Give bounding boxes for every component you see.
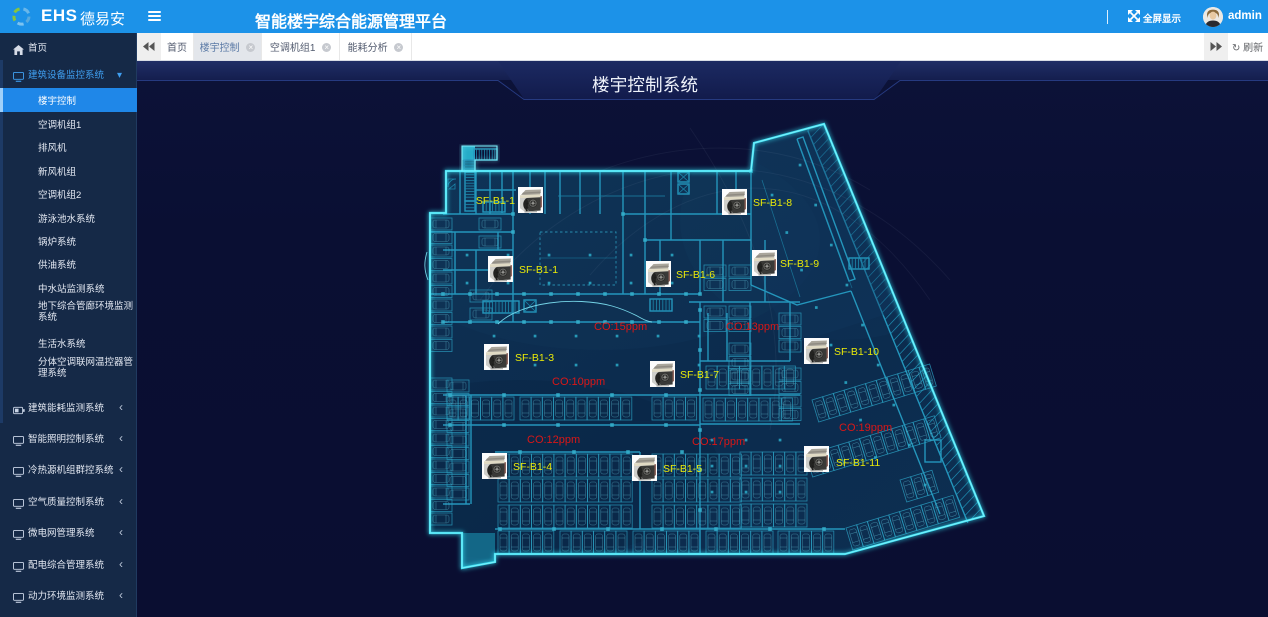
svg-text:SF-B1-5: SF-B1-5 [663,463,702,475]
svg-text:SF-B1-3: SF-B1-3 [515,352,554,364]
svg-text:CO:13ppm: CO:13ppm [726,321,779,333]
svg-text:CO:15ppm: CO:15ppm [594,321,647,333]
svg-text:SF-B1-6: SF-B1-6 [676,269,715,281]
svg-text:SF-B1-4: SF-B1-4 [513,461,552,473]
svg-text:CO:12ppm: CO:12ppm [527,434,580,446]
svg-text:SF-B1-1: SF-B1-1 [519,264,558,276]
svg-text:SF-B1-11: SF-B1-11 [836,457,880,469]
svg-text:CO:10ppm: CO:10ppm [552,376,605,388]
svg-text:CO:17ppm: CO:17ppm [692,436,745,448]
svg-text:SF-B1-8: SF-B1-8 [753,197,792,209]
svg-text:SF-B1-9: SF-B1-9 [780,258,819,270]
svg-text:SF-B1-7: SF-B1-7 [680,369,719,381]
svg-text:SF-B1-1: SF-B1-1 [476,195,515,207]
svg-text:CO:19ppm: CO:19ppm [839,422,892,434]
svg-text:SF-B1-10: SF-B1-10 [834,346,879,358]
